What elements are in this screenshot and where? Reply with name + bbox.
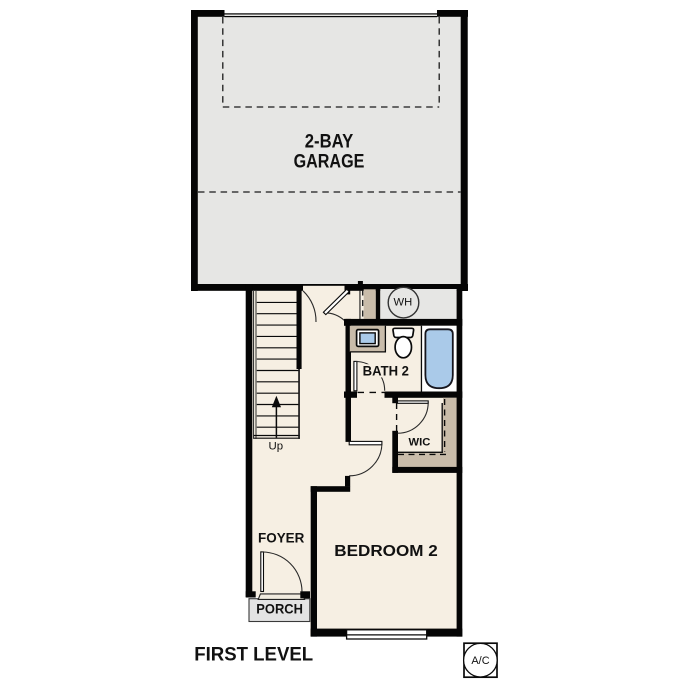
svg-text:FOYER: FOYER <box>258 530 304 546</box>
svg-text:GARAGE: GARAGE <box>294 150 365 172</box>
svg-text:2-BAY: 2-BAY <box>305 131 354 153</box>
svg-text:FIRST LEVEL: FIRST LEVEL <box>194 644 313 666</box>
svg-text:BATH 2: BATH 2 <box>363 364 409 379</box>
svg-text:WIC: WIC <box>409 437 431 449</box>
svg-text:Up: Up <box>269 441 284 453</box>
svg-text:WH: WH <box>394 296 413 308</box>
svg-text:A/C: A/C <box>471 655 489 667</box>
svg-text:BEDROOM 2: BEDROOM 2 <box>334 542 437 560</box>
svg-text:PORCH: PORCH <box>256 602 303 617</box>
